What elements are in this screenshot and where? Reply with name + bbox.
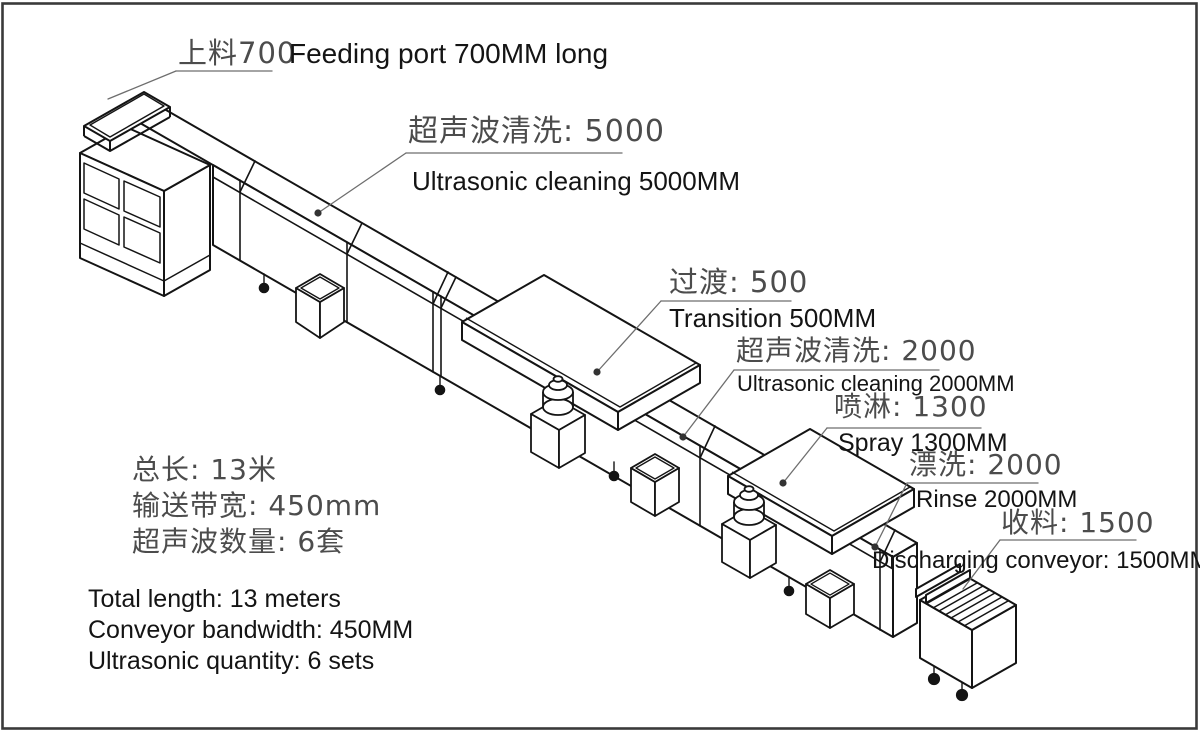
label-rinse-cn: 漂洗: 2000 [909,450,1063,479]
spec-total-length-en: Total length: 13 meters [88,584,413,615]
spec-belt-width-en: Conveyor bandwidth: 450MM [88,615,413,646]
label-transition-cn: 过渡: 500 [669,267,808,297]
label-ultrasonic2000-cn: 超声波清洗: 2000 [736,336,977,365]
label-feeding-en: Feeding port 700MM long [289,39,608,68]
label-ultrasonic5000-en: Ultrasonic cleaning 5000MM [412,168,740,195]
label-discharge-cn: 收料: 1500 [1001,508,1155,537]
basket-2 [631,454,679,516]
label-ultrasonic5000-cn: 超声波清洗: 5000 [408,116,665,148]
spec-block-cn: 总长: 13米 输送带宽: 450mm 超声波数量: 6套 [132,452,381,560]
diagram-canvas: 上料700 Feeding port 700MM long 超声波清洗: 500… [0,0,1200,735]
label-feeding-cn: 上料700 [178,38,296,68]
spec-ultrasonic-qty-en: Ultrasonic quantity: 6 sets [88,646,413,677]
spec-ultrasonic-qty-cn: 超声波数量: 6套 [132,524,381,560]
label-discharge-en: Discharging conveyor: 1500MM [872,548,1200,573]
spec-belt-width-cn: 输送带宽: 450mm [132,488,381,524]
label-spray-cn: 喷淋: 1300 [834,392,988,421]
label-transition-en: Transition 500MM [669,305,876,332]
basket-1 [296,274,344,338]
spec-block-en: Total length: 13 meters Conveyor bandwid… [88,584,413,677]
spec-total-length-cn: 总长: 13米 [132,452,381,488]
